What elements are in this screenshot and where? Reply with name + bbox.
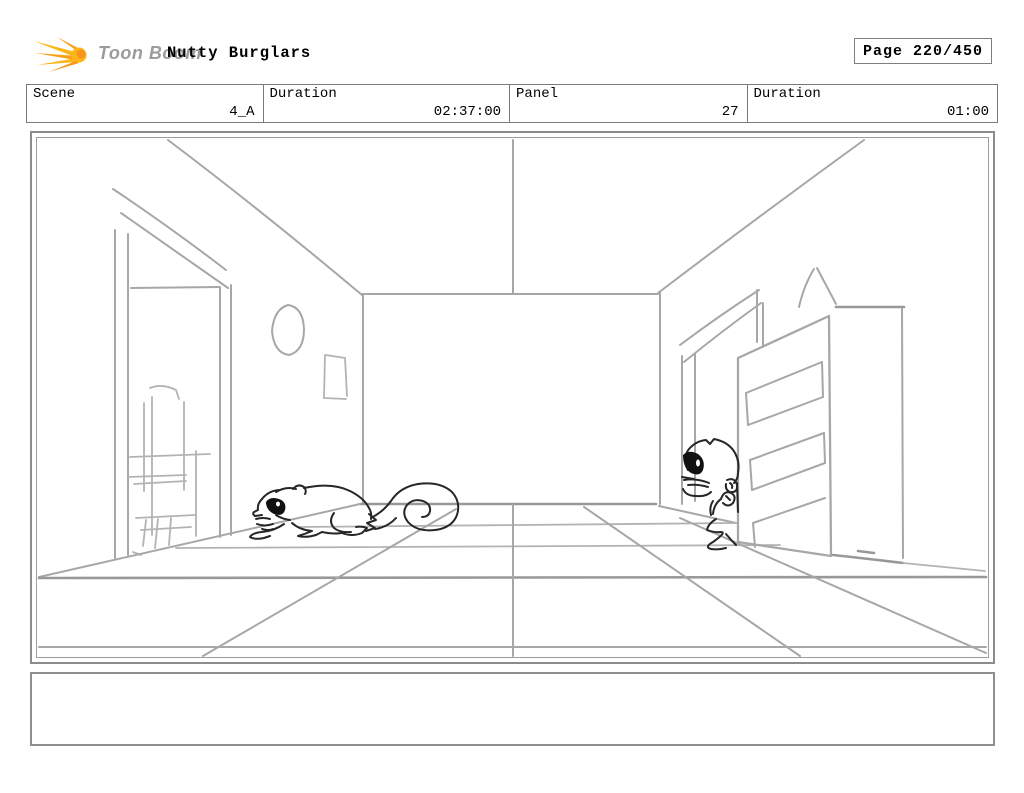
peeking-character bbox=[682, 439, 739, 549]
scene-cell: Scene 4_A bbox=[27, 85, 264, 122]
caption-box bbox=[30, 672, 995, 746]
scene-duration-value: 02:37:00 bbox=[434, 104, 501, 120]
page-header: Toon Boom Nutty Burglars Page 220/450 bbox=[26, 34, 998, 74]
panel-cell: Panel 27 bbox=[510, 85, 748, 122]
panel-label: Panel bbox=[516, 86, 558, 102]
panel-duration-cell: Duration 01:00 bbox=[748, 85, 997, 122]
peeker-eye bbox=[683, 452, 704, 475]
squirrel-eye-highlight bbox=[276, 502, 280, 507]
storyboard-page: Toon Boom Nutty Burglars Page 220/450 Sc… bbox=[0, 0, 1024, 793]
storyboard-panel-frame bbox=[30, 131, 995, 664]
sketch-open-door bbox=[738, 268, 836, 556]
squirrel-eye bbox=[266, 498, 285, 515]
sketch-room bbox=[113, 140, 864, 504]
info-table: Scene 4_A Duration 02:37:00 Panel 27 Dur… bbox=[26, 84, 998, 123]
sketch-wall-decor bbox=[272, 305, 347, 399]
storyboard-panel bbox=[36, 137, 989, 658]
panel-value: 27 bbox=[722, 104, 739, 120]
sketch-furniture bbox=[128, 386, 210, 555]
squirrel-tail bbox=[371, 483, 458, 530]
peeker-eye-highlight bbox=[696, 460, 700, 467]
scene-duration-label: Duration bbox=[270, 86, 337, 102]
small-picture-frame bbox=[324, 355, 347, 399]
page-number-badge: Page 220/450 bbox=[854, 38, 992, 64]
scene-label: Scene bbox=[33, 86, 75, 102]
panel-duration-label: Duration bbox=[754, 86, 821, 102]
sketch-dresser bbox=[833, 307, 985, 571]
door-swing-mark bbox=[799, 268, 836, 307]
project-title: Nutty Burglars bbox=[167, 44, 311, 62]
scene-duration-cell: Duration 02:37:00 bbox=[264, 85, 511, 122]
toonboom-starburst-icon bbox=[33, 36, 93, 74]
storyboard-sketch bbox=[37, 138, 988, 657]
panel-duration-value: 01:00 bbox=[947, 104, 989, 120]
oval-mirror bbox=[272, 305, 304, 355]
squirrel-character bbox=[250, 483, 458, 538]
scene-value: 4_A bbox=[229, 104, 254, 120]
sketch-left-doorway bbox=[115, 230, 231, 558]
